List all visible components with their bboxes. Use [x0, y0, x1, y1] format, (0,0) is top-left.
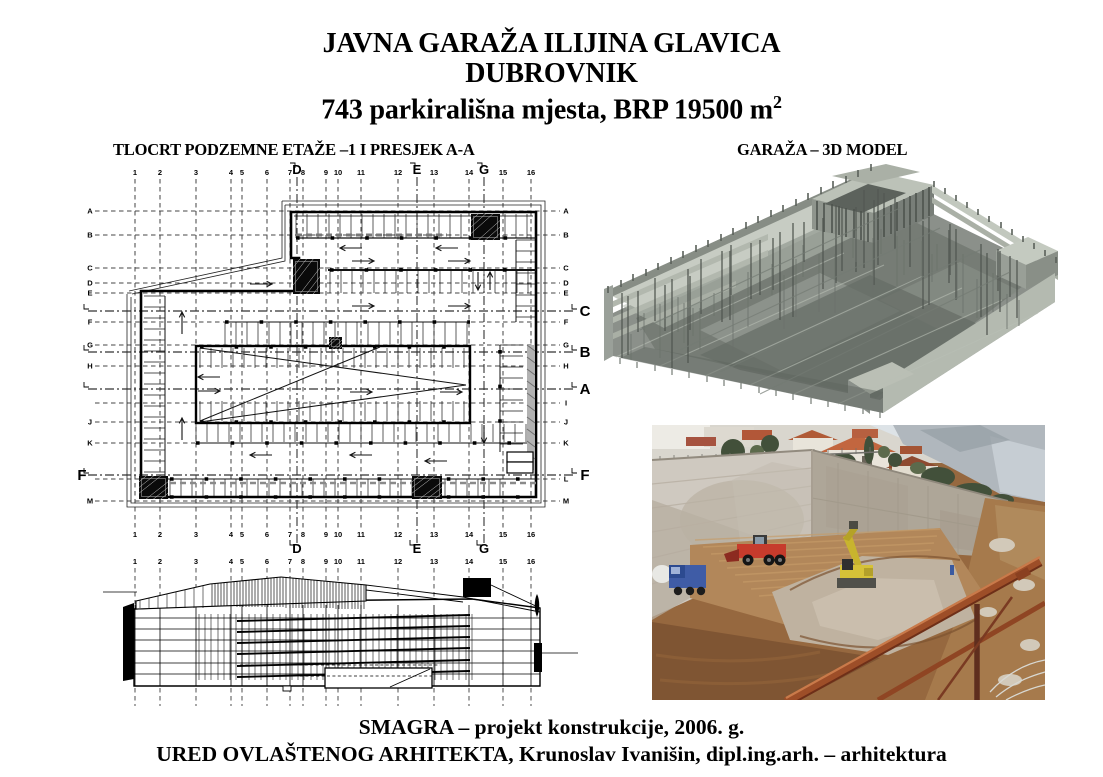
svg-text:7: 7	[288, 530, 292, 539]
svg-text:3: 3	[194, 530, 198, 539]
svg-text:12: 12	[394, 530, 402, 539]
svg-text:H: H	[87, 362, 92, 371]
svg-text:8: 8	[301, 557, 305, 566]
svg-text:14: 14	[465, 557, 474, 566]
svg-text:1: 1	[133, 530, 137, 539]
svg-text:D: D	[292, 541, 301, 556]
svg-text:A: A	[580, 381, 591, 398]
svg-text:A: A	[563, 207, 569, 216]
svg-text:9: 9	[324, 530, 328, 539]
svg-text:B: B	[580, 344, 591, 361]
svg-text:9: 9	[324, 557, 328, 566]
svg-text:I: I	[565, 399, 567, 408]
svg-text:11: 11	[357, 530, 365, 539]
svg-text:12: 12	[394, 168, 402, 177]
svg-text:4: 4	[229, 557, 234, 566]
svg-text:6: 6	[265, 530, 269, 539]
svg-text:16: 16	[527, 557, 535, 566]
svg-text:J: J	[88, 418, 92, 427]
svg-text:C: C	[563, 264, 569, 273]
svg-text:B: B	[563, 231, 569, 240]
svg-text:3: 3	[194, 168, 198, 177]
svg-text:F: F	[580, 467, 589, 484]
svg-text:10: 10	[334, 530, 342, 539]
svg-text:11: 11	[357, 168, 365, 177]
svg-text:G: G	[479, 162, 489, 177]
svg-text:G: G	[87, 341, 93, 350]
svg-text:14: 14	[465, 530, 474, 539]
svg-text:3: 3	[194, 557, 198, 566]
svg-text:15: 15	[499, 557, 507, 566]
svg-text:M: M	[87, 497, 93, 506]
svg-text:10: 10	[334, 557, 342, 566]
svg-text:6: 6	[265, 168, 269, 177]
svg-text:11: 11	[357, 557, 365, 566]
svg-text:L: L	[564, 475, 569, 484]
svg-text:12: 12	[394, 557, 402, 566]
svg-text:9: 9	[324, 168, 328, 177]
svg-text:6: 6	[265, 557, 269, 566]
svg-text:G: G	[479, 541, 489, 556]
svg-text:16: 16	[527, 168, 535, 177]
svg-text:15: 15	[499, 530, 507, 539]
svg-text:K: K	[87, 439, 93, 448]
svg-text:5: 5	[240, 168, 244, 177]
svg-text:J: J	[564, 418, 568, 427]
svg-text:2: 2	[158, 168, 162, 177]
svg-text:4: 4	[229, 530, 234, 539]
svg-text:G: G	[563, 341, 569, 350]
svg-text:D: D	[292, 162, 301, 177]
svg-text:16: 16	[527, 530, 535, 539]
svg-text:K: K	[563, 439, 569, 448]
svg-text:B: B	[87, 231, 93, 240]
svg-text:M: M	[563, 497, 569, 506]
svg-text:10: 10	[334, 168, 342, 177]
svg-text:C: C	[87, 264, 93, 273]
svg-text:A: A	[87, 207, 93, 216]
svg-text:4: 4	[229, 168, 234, 177]
svg-text:2: 2	[158, 530, 162, 539]
svg-text:13: 13	[430, 530, 438, 539]
svg-text:E: E	[87, 289, 92, 298]
svg-text:E: E	[413, 162, 422, 177]
svg-text:2: 2	[158, 557, 162, 566]
svg-text:E: E	[563, 289, 568, 298]
svg-text:13: 13	[430, 557, 438, 566]
svg-text:F: F	[77, 467, 86, 484]
svg-text:14: 14	[465, 168, 474, 177]
svg-text:D: D	[563, 279, 569, 288]
svg-text:E: E	[413, 541, 422, 556]
svg-text:F: F	[564, 318, 569, 327]
svg-text:F: F	[88, 318, 93, 327]
svg-text:C: C	[580, 303, 591, 320]
svg-text:1: 1	[133, 557, 137, 566]
svg-text:H: H	[563, 362, 568, 371]
svg-text:8: 8	[301, 530, 305, 539]
svg-text:5: 5	[240, 557, 244, 566]
svg-text:13: 13	[430, 168, 438, 177]
svg-text:1: 1	[133, 168, 137, 177]
svg-text:5: 5	[240, 530, 244, 539]
svg-text:D: D	[87, 279, 93, 288]
svg-text:15: 15	[499, 168, 507, 177]
svg-text:7: 7	[288, 557, 292, 566]
